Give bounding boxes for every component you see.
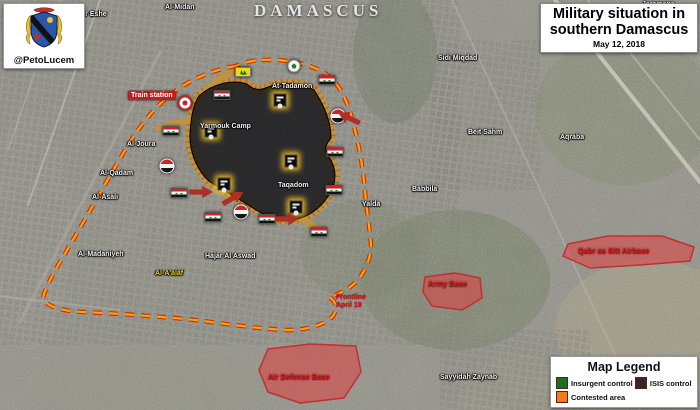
legend-swatch: [635, 377, 647, 389]
legend-label: Contested area: [571, 393, 625, 402]
title-box: Military situation in southern Damascus …: [540, 3, 698, 53]
base-polygon-air-defense: [259, 344, 361, 403]
legend-label: Insurgent control: [571, 379, 633, 388]
legend-item: Insurgent control: [556, 377, 635, 389]
legend-swatch: [556, 377, 568, 389]
title-date: May 12, 2018: [543, 39, 695, 49]
map-screenshot: DAMASCUS Frontline April 19 Nahr EsheAl-…: [0, 0, 700, 410]
satellite-map: [0, 0, 700, 410]
coat-of-arms: [22, 6, 66, 50]
legend-item: ISIS control: [635, 377, 692, 389]
legend-label: ISIS control: [650, 379, 692, 388]
title-line2: southern Damascus: [543, 23, 695, 39]
title-line1: Military situation in: [543, 7, 695, 23]
attribution-handle: @PetoLucem: [4, 55, 84, 66]
legend-item: Contested area: [556, 391, 692, 403]
attribution-box: @PetoLucem: [3, 3, 85, 69]
legend-title: Map Legend: [556, 360, 692, 374]
legend-box: Map Legend Insurgent controlISIS control…: [550, 356, 698, 408]
legend-items: Insurgent controlISIS controlContested a…: [556, 376, 692, 404]
legend-swatch: [556, 391, 568, 403]
